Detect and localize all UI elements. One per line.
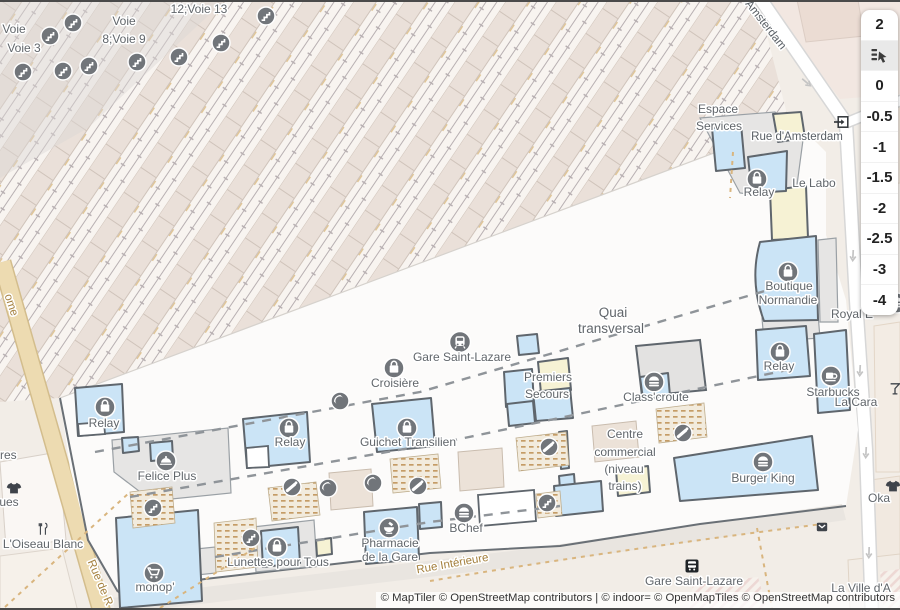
map-label: à Cigares xyxy=(0,448,17,462)
stairs-icon xyxy=(242,529,260,547)
map-label: Relay xyxy=(744,185,775,199)
level-button--2[interactable]: -2 xyxy=(861,193,898,224)
level-selector: 20-0.5-1-1.5-2-2.5-3-4 xyxy=(861,10,898,315)
stairs-icon xyxy=(41,27,59,45)
map-label: Boutique xyxy=(765,279,813,293)
map-label: Secours xyxy=(525,387,569,401)
map-label: trains) xyxy=(608,479,641,493)
phone-icon xyxy=(319,479,337,497)
post-box-icon xyxy=(817,523,827,531)
phone-icon xyxy=(364,474,382,492)
level-control-floor-picker-hand[interactable] xyxy=(861,40,898,71)
level-button--3[interactable]: -3 xyxy=(861,254,898,285)
floor-picker-hand-icon xyxy=(870,46,889,65)
map-label: L'Oiseau Blanc xyxy=(3,537,83,551)
map-label: (niveau xyxy=(604,462,643,476)
stairs-icon xyxy=(538,494,556,512)
level-button--2.5[interactable]: -2.5 xyxy=(861,223,898,254)
map-label: Oka xyxy=(868,491,890,505)
map-label: La Cara xyxy=(835,395,878,409)
stairs-icon xyxy=(144,499,162,517)
shopping-bag-icon xyxy=(384,358,404,378)
map-label: transversal xyxy=(578,321,644,336)
map-label: de la Gare xyxy=(362,550,418,564)
map-label: Centre xyxy=(607,427,643,441)
map-label: Premiers xyxy=(524,370,572,384)
map-label: Voie xyxy=(112,14,136,28)
window-edge-top xyxy=(0,0,900,2)
level-button-2[interactable]: 2 xyxy=(861,10,898,40)
bus-stop-icon xyxy=(686,560,699,573)
map-label: commercial xyxy=(594,445,655,459)
stairs-icon xyxy=(14,63,32,81)
map-label: amarques xyxy=(0,495,19,509)
map-canvas[interactable]: VoieVoie 3Voie8;Voie 912;Voie 13EspaceSe… xyxy=(0,0,900,610)
map-label: Quai xyxy=(599,305,628,320)
map-label: Relay xyxy=(89,416,120,430)
shopping-bag-icon xyxy=(267,537,287,557)
map-label: Voie 3 xyxy=(7,41,41,55)
phone-icon xyxy=(331,392,349,410)
escalator-icon xyxy=(283,478,301,496)
map-label: Espace xyxy=(698,102,738,116)
coffee-icon xyxy=(821,366,841,386)
map-label: monop' xyxy=(136,580,175,594)
level-button--4[interactable]: -4 xyxy=(861,284,898,315)
stairs-icon xyxy=(128,53,146,71)
map-label: Croisière xyxy=(371,376,419,390)
map-label: Pharmacie xyxy=(361,536,419,550)
map-label: Gare Saint-Lazare xyxy=(413,350,511,364)
map-label: 8;Voie 9 xyxy=(102,32,146,46)
map-attribution: © MapTiler © OpenStreetMap contributors … xyxy=(376,592,900,608)
map-label: Relay xyxy=(275,435,306,449)
indoor-map-viewer: VoieVoie 3Voie8;Voie 912;Voie 13EspaceSe… xyxy=(0,0,900,610)
map-label: Burger King xyxy=(731,471,794,485)
map-label: Relay xyxy=(764,359,795,373)
stairs-icon xyxy=(64,14,82,32)
pharmacy-icon xyxy=(379,518,399,538)
map-label: Normandie xyxy=(759,293,818,307)
stairs-icon xyxy=(80,57,98,75)
fast-food-icon xyxy=(644,372,664,392)
stairs-icon xyxy=(212,34,230,52)
food-cloche-icon xyxy=(156,451,176,471)
level-button-0[interactable]: 0 xyxy=(861,70,898,101)
map-label: Class'croute xyxy=(623,390,689,404)
map-label: Lunettes pour Tous xyxy=(227,555,329,569)
map-label: Le Labo xyxy=(792,176,836,190)
stairs-icon xyxy=(257,7,275,25)
escalator-icon xyxy=(409,477,427,495)
map-label: Felice Plus xyxy=(138,469,197,483)
level-button--1[interactable]: -1 xyxy=(861,131,898,162)
fast-food-icon xyxy=(753,452,773,472)
escalator-icon xyxy=(674,424,692,442)
map-label: 12;Voie 13 xyxy=(171,2,228,16)
map-label: Services xyxy=(696,119,742,133)
map-label: Gare Saint-Lazare xyxy=(645,574,743,588)
escalator-icon xyxy=(540,438,558,456)
level-button--0.5[interactable]: -0.5 xyxy=(861,101,898,132)
fast-food-icon xyxy=(454,503,474,523)
map-label: Voie xyxy=(2,22,26,36)
map-label: BChef xyxy=(449,521,483,535)
map-label: Rue d'Amsterdam xyxy=(751,131,843,143)
shopping-bag-icon xyxy=(95,397,115,417)
map-label: Guichet Transilien xyxy=(360,435,456,449)
stairs-icon xyxy=(170,48,188,66)
stairs-icon xyxy=(54,62,72,80)
level-button--1.5[interactable]: -1.5 xyxy=(861,162,898,193)
